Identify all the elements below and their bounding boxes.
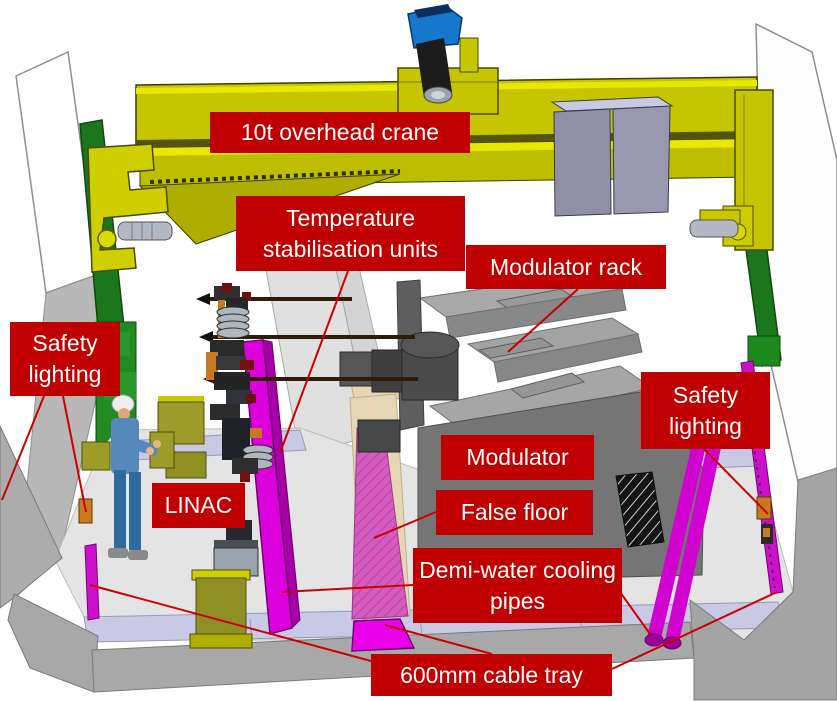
label-overhead-crane: 10t overhead crane — [210, 112, 470, 153]
cable-tray-left-wall — [85, 544, 99, 620]
label-safety-lighting-left: Safety lighting — [10, 322, 120, 396]
label-false-floor: False floor — [436, 490, 593, 535]
label-temp-stabilisation: Temperature stabilisation units — [236, 196, 465, 271]
label-600mm-cable-tray: 600mm cable tray — [371, 654, 612, 696]
label-linac: LINAC — [152, 483, 245, 528]
label-modulator-rack: Modulator rack — [466, 245, 666, 289]
annotated-3d-accelerator-hall: 10t overhead crane Temperature stabilisa… — [0, 0, 837, 701]
label-demi-water-pipes: Demi-water cooling pipes — [413, 548, 622, 623]
label-modulator: Modulator — [441, 435, 594, 480]
label-safety-lighting-right: Safety lighting — [641, 372, 770, 449]
